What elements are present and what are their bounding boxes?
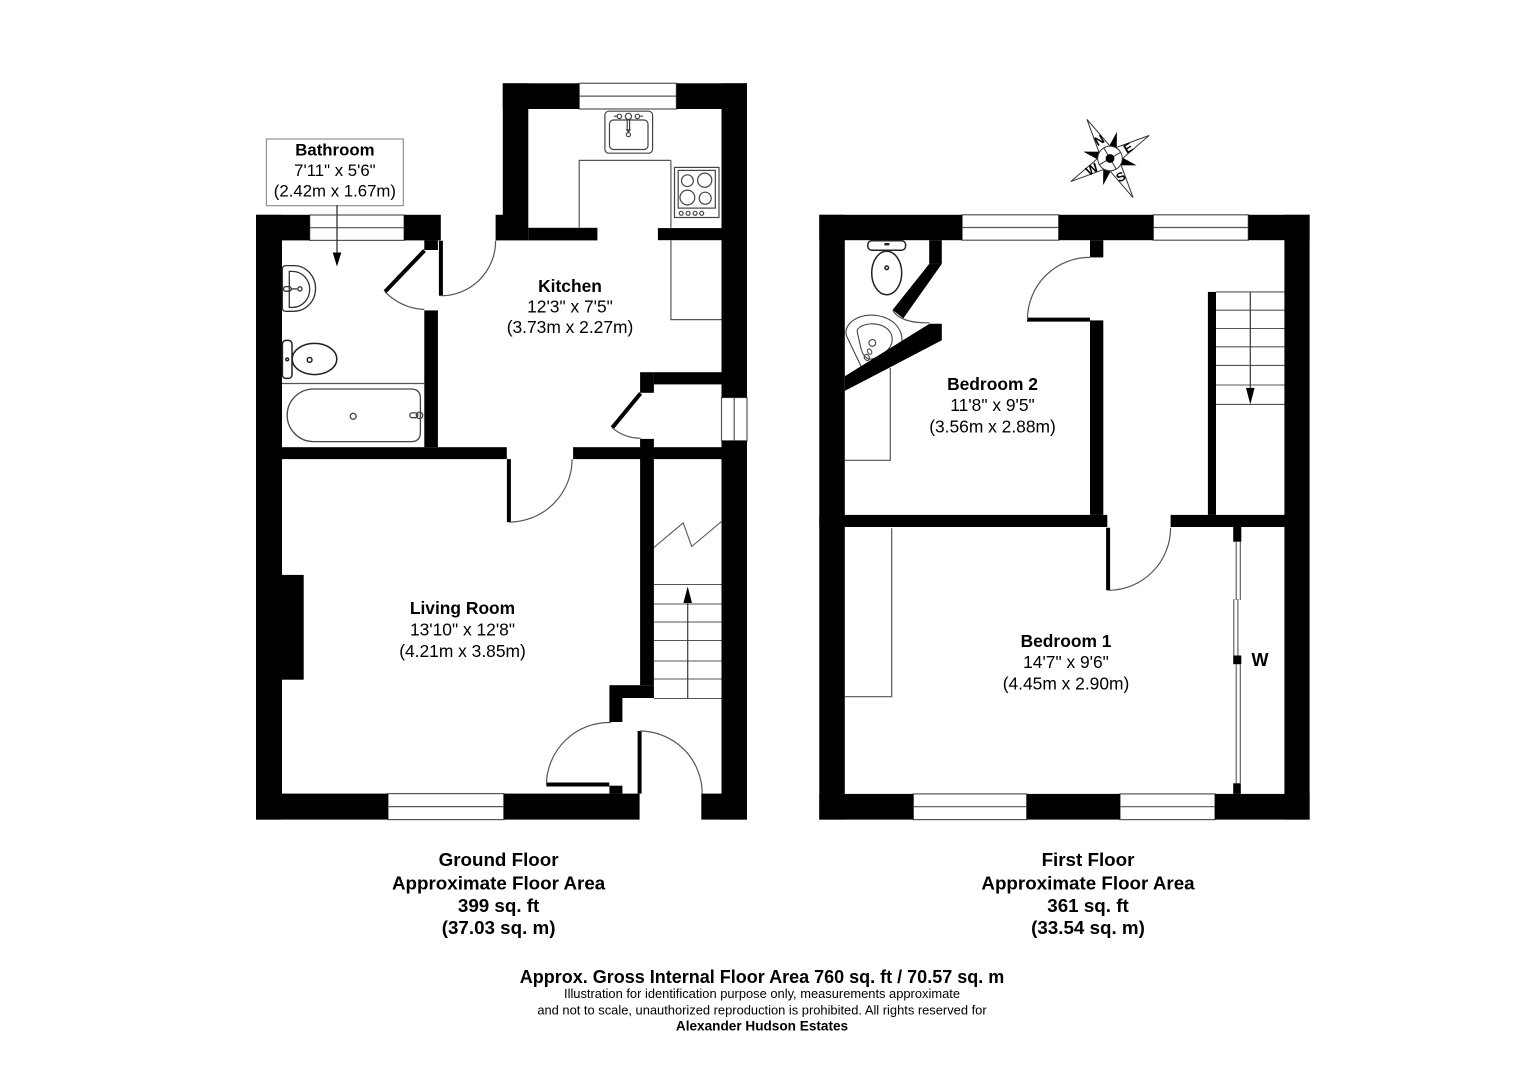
svg-text:Approximate Floor Area: Approximate Floor Area — [392, 873, 606, 894]
svg-text:14'7" x 9'6": 14'7" x 9'6" — [1023, 652, 1109, 672]
svg-text:and not to scale, unauthorized: and not to scale, unauthorized reproduct… — [537, 1003, 987, 1018]
svg-text:361 sq. ft: 361 sq. ft — [1047, 895, 1129, 916]
svg-text:W: W — [1252, 650, 1269, 670]
svg-text:7'11" x 5'6": 7'11" x 5'6" — [294, 161, 375, 180]
svg-text:Ground Floor: Ground Floor — [439, 849, 560, 870]
svg-text:Living Room: Living Room — [410, 598, 515, 618]
svg-text:Approximate Floor Area: Approximate Floor Area — [981, 873, 1195, 894]
svg-text:(4.21m x 3.85m): (4.21m x 3.85m) — [399, 641, 526, 661]
svg-text:(4.45m x 2.90m): (4.45m x 2.90m) — [1003, 674, 1130, 694]
svg-text:Bedroom 2: Bedroom 2 — [947, 374, 1038, 394]
svg-text:12'3" x 7'5": 12'3" x 7'5" — [527, 297, 613, 317]
svg-text:(3.73m x 2.27m): (3.73m x 2.27m) — [507, 317, 634, 337]
svg-text:Illustration for identificatio: Illustration for identification purpose … — [564, 986, 960, 1001]
svg-text:Bathroom: Bathroom — [295, 141, 374, 160]
svg-text:(3.56m x 2.88m): (3.56m x 2.88m) — [929, 417, 1056, 437]
svg-text:Alexander Hudson Estates: Alexander Hudson Estates — [676, 1019, 848, 1034]
svg-text:Bedroom 1: Bedroom 1 — [1021, 631, 1112, 651]
svg-text:399 sq. ft: 399 sq. ft — [458, 895, 540, 916]
svg-text:(33.54 sq. m): (33.54 sq. m) — [1031, 917, 1145, 938]
svg-text:13'10" x 12'8": 13'10" x 12'8" — [410, 620, 515, 640]
svg-text:Kitchen: Kitchen — [538, 276, 602, 296]
svg-text:Approx. Gross Internal Floor A: Approx. Gross Internal Floor Area 760 sq… — [520, 967, 1004, 987]
svg-text:11'8" x 9'5": 11'8" x 9'5" — [950, 395, 1034, 415]
svg-text:First Floor: First Floor — [1042, 849, 1136, 870]
svg-text:(37.03 sq. m): (37.03 sq. m) — [442, 917, 556, 938]
svg-text:(2.42m x 1.67m): (2.42m x 1.67m) — [274, 182, 396, 201]
